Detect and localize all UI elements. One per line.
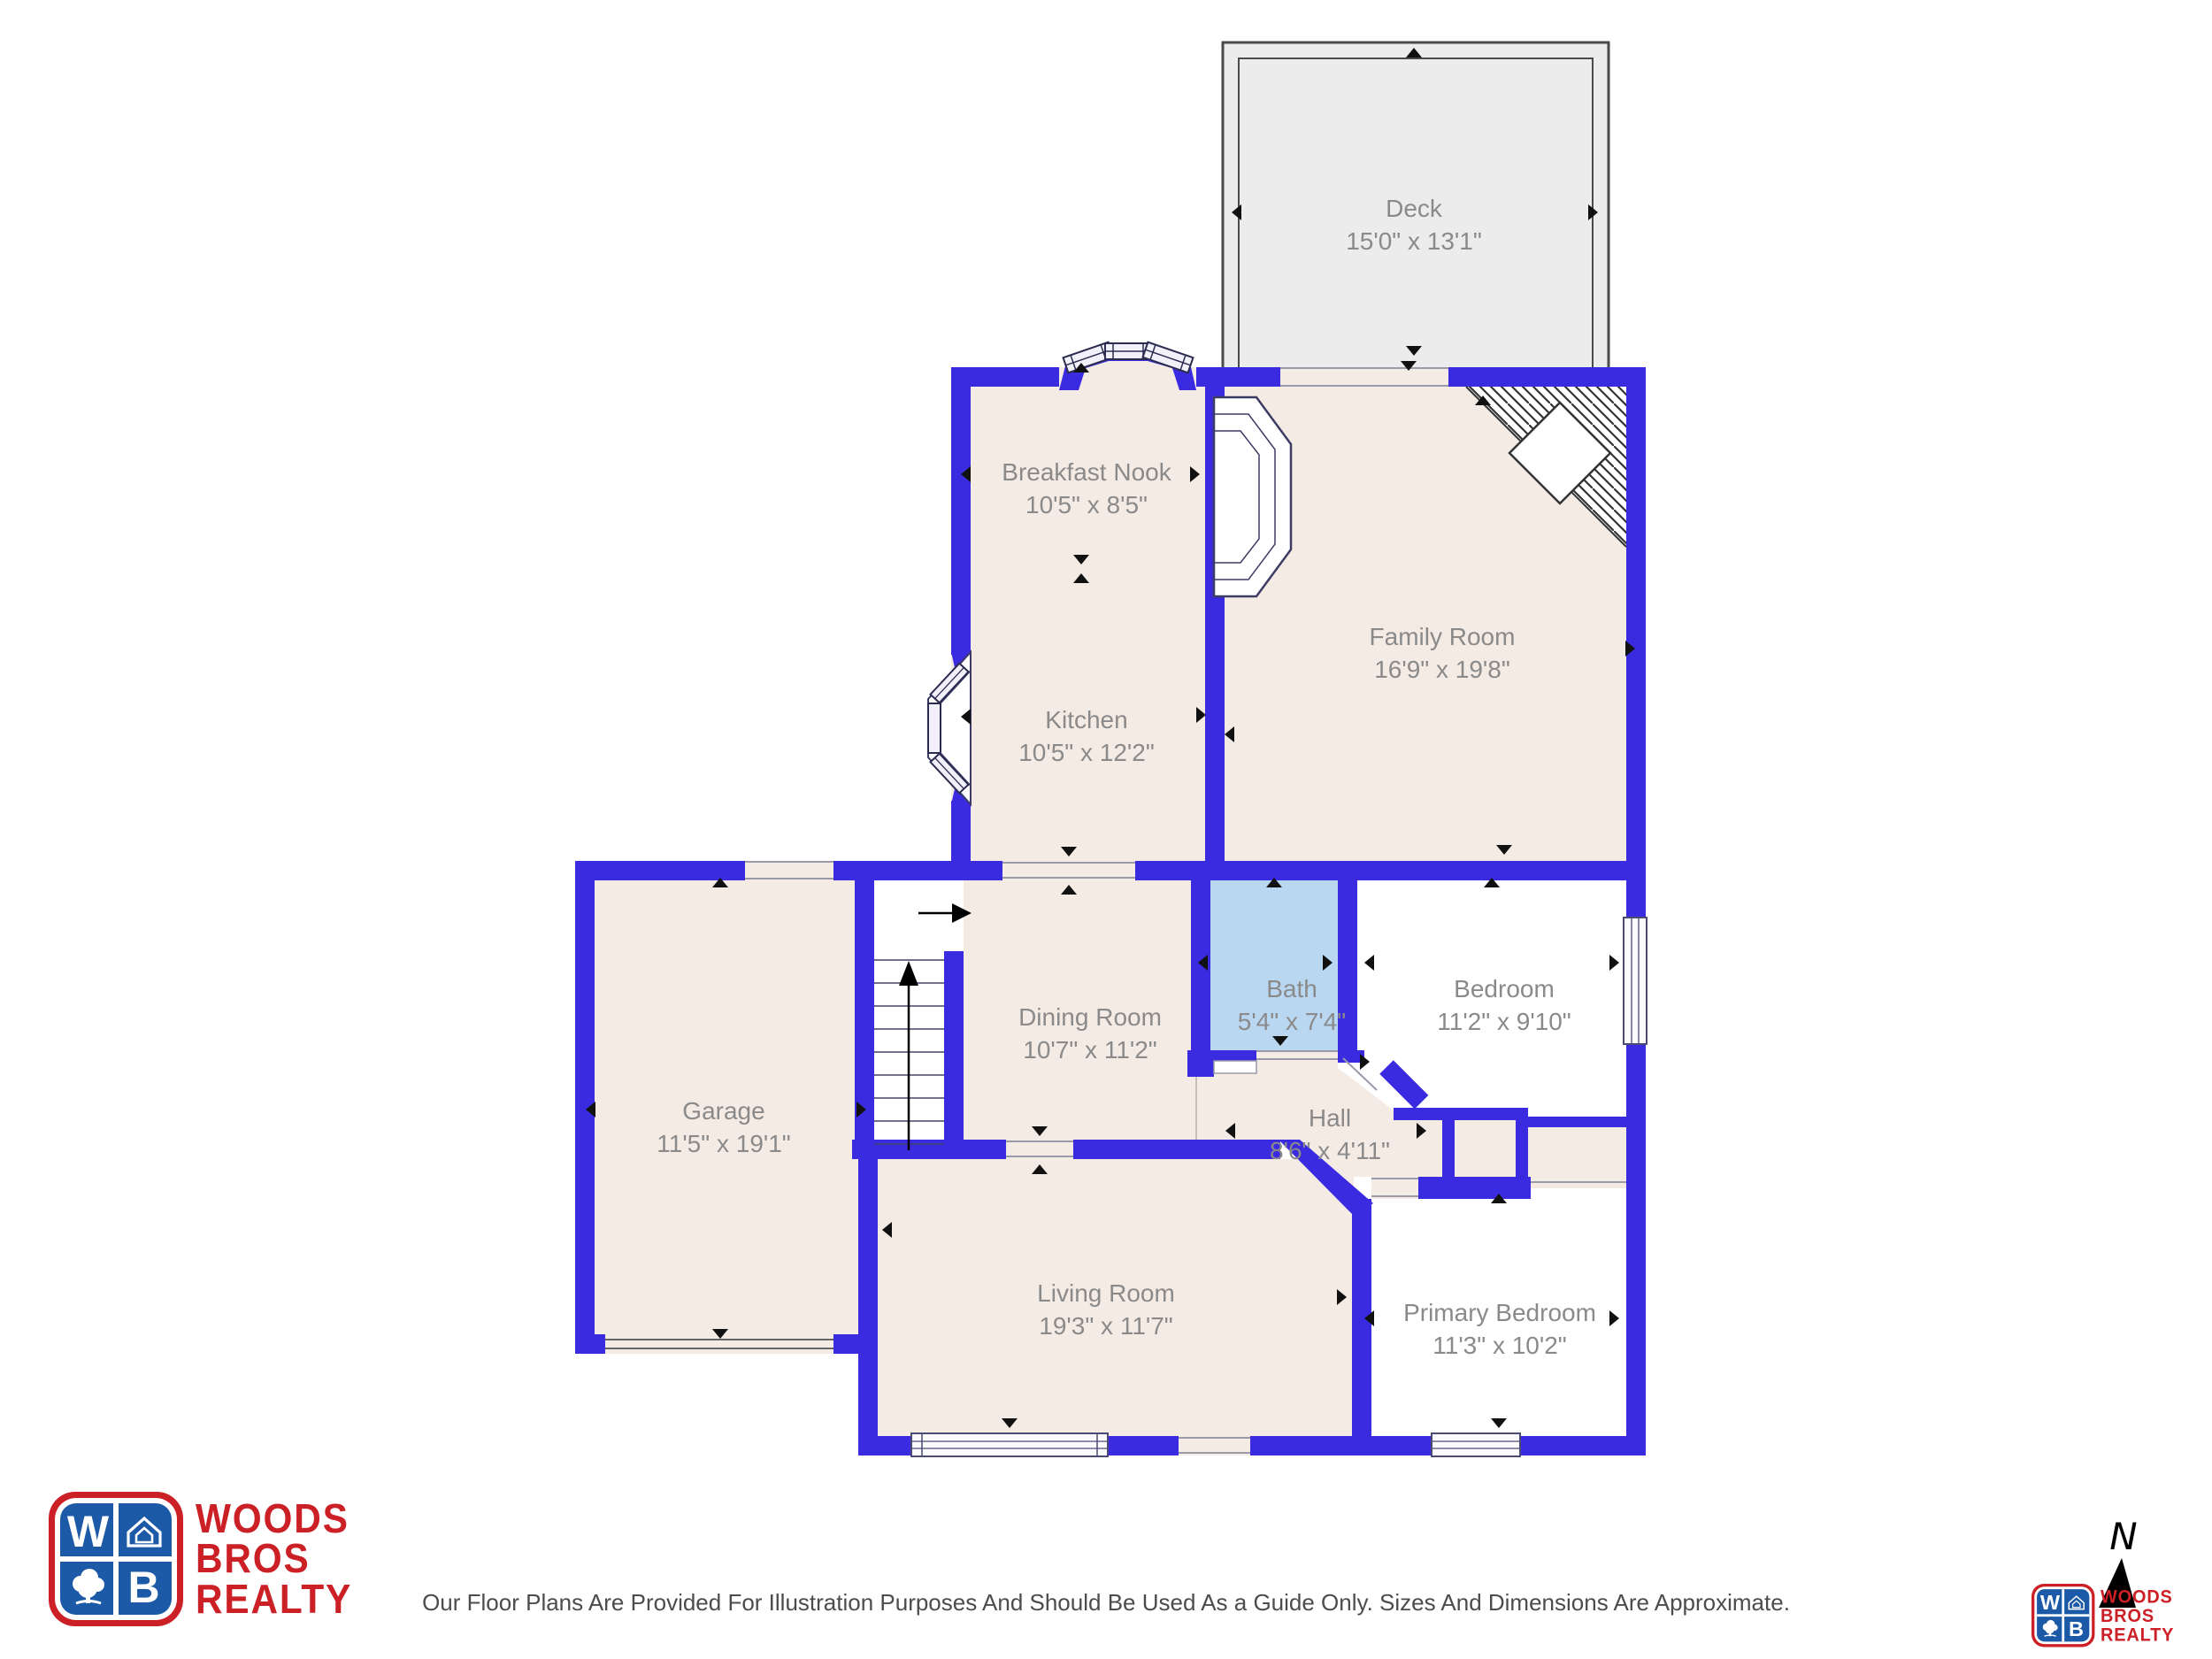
room-dims: 11'5" x 19'1" bbox=[657, 1128, 790, 1161]
logo-letter-b: B bbox=[116, 1559, 172, 1615]
room-dims: 10'5" x 12'2" bbox=[1018, 737, 1155, 770]
room-name: Living Room bbox=[1037, 1278, 1175, 1310]
woods-bros-logo-small: W bbox=[2032, 1584, 2181, 1647]
house-icon bbox=[116, 1503, 172, 1559]
room-dims: 5'4" x 7'4" bbox=[1238, 1006, 1346, 1039]
north-label: N bbox=[2109, 1515, 2137, 1558]
room-dims: 10'5" x 8'5" bbox=[1002, 489, 1171, 522]
room-label-bath: Bath 5'4" x 7'4" bbox=[1238, 973, 1346, 1039]
woods-bros-logo: W bbox=[49, 1492, 366, 1626]
room-dims: 15'0" x 13'1" bbox=[1346, 226, 1482, 258]
woods-bros-wordmark: WOODS BROS REALTY bbox=[196, 1499, 352, 1618]
room-fill-closet2 bbox=[1528, 1127, 1626, 1177]
room-label-deck: Deck 15'0" x 13'1" bbox=[1346, 193, 1482, 258]
room-dims: 16'9" x 19'8" bbox=[1370, 654, 1516, 687]
room-label-living-room: Living Room 19'3" x 11'7" bbox=[1037, 1278, 1175, 1343]
kitchen-bay-window bbox=[928, 652, 971, 804]
room-label-family-room: Family Room 16'9" x 19'8" bbox=[1370, 621, 1516, 687]
room-label-kitchen: Kitchen 10'5" x 12'2" bbox=[1018, 704, 1155, 770]
room-name: Family Room bbox=[1370, 621, 1516, 654]
room-name: Bedroom bbox=[1437, 973, 1571, 1006]
floor-plan-canvas: Deck 15'0" x 13'1" Breakfast Nook 10'5" … bbox=[0, 0, 2212, 1659]
room-fill-landing bbox=[874, 880, 964, 960]
woods-bros-wordmark-small: WOODS BROS REALTY bbox=[2101, 1587, 2174, 1644]
room-label-bedroom: Bedroom 11'2" x 9'10" bbox=[1437, 973, 1571, 1039]
room-label-hall: Hall 8'6" x 4'11" bbox=[1270, 1102, 1390, 1168]
floor-plan-drawing bbox=[0, 0, 2212, 1659]
room-name: Hall bbox=[1270, 1102, 1390, 1135]
room-dims: 19'3" x 11'7" bbox=[1037, 1310, 1175, 1343]
tree-icon bbox=[60, 1559, 116, 1615]
room-name: Dining Room bbox=[1018, 1002, 1162, 1034]
living-room-window bbox=[911, 1433, 1108, 1456]
primary-bedroom-window bbox=[1432, 1433, 1520, 1456]
bedroom-window bbox=[1624, 918, 1647, 1044]
room-dims: 11'2" x 9'10" bbox=[1437, 1006, 1571, 1039]
north-indicator: N bbox=[2070, 1515, 2177, 1558]
room-dims: 8'6" x 4'11" bbox=[1270, 1135, 1390, 1168]
tree-icon bbox=[2037, 1616, 2063, 1642]
room-name: Primary Bedroom bbox=[1403, 1297, 1596, 1330]
house-icon bbox=[2063, 1589, 2090, 1616]
room-dims: 11'3" x 10'2" bbox=[1403, 1330, 1596, 1363]
room-label-primary-bedroom: Primary Bedroom 11'3" x 10'2" bbox=[1403, 1297, 1596, 1363]
room-name: Deck bbox=[1346, 193, 1482, 226]
woods-bros-badge-icon-small: W bbox=[2032, 1584, 2094, 1647]
room-name: Garage bbox=[657, 1095, 790, 1128]
room-name: Bath bbox=[1238, 973, 1346, 1006]
room-name: Kitchen bbox=[1018, 704, 1155, 737]
logo-letter-b: B bbox=[2063, 1616, 2090, 1642]
kitchen-family-niche bbox=[1214, 397, 1291, 596]
room-label-breakfast-nook: Breakfast Nook 10'5" x 8'5" bbox=[1002, 457, 1171, 522]
logo-letter-w: W bbox=[60, 1503, 116, 1559]
disclaimer-text: Our Floor Plans Are Provided For Illustr… bbox=[422, 1589, 1790, 1617]
woods-bros-badge-icon: W bbox=[49, 1492, 183, 1626]
room-dims: 10'7" x 11'2" bbox=[1018, 1034, 1162, 1067]
logo-letter-w: W bbox=[2037, 1589, 2063, 1616]
room-label-garage: Garage 11'5" x 19'1" bbox=[657, 1095, 790, 1161]
room-fills bbox=[575, 367, 1646, 1436]
room-label-dining-room: Dining Room 10'7" x 11'2" bbox=[1018, 1002, 1162, 1067]
room-name: Breakfast Nook bbox=[1002, 457, 1171, 489]
